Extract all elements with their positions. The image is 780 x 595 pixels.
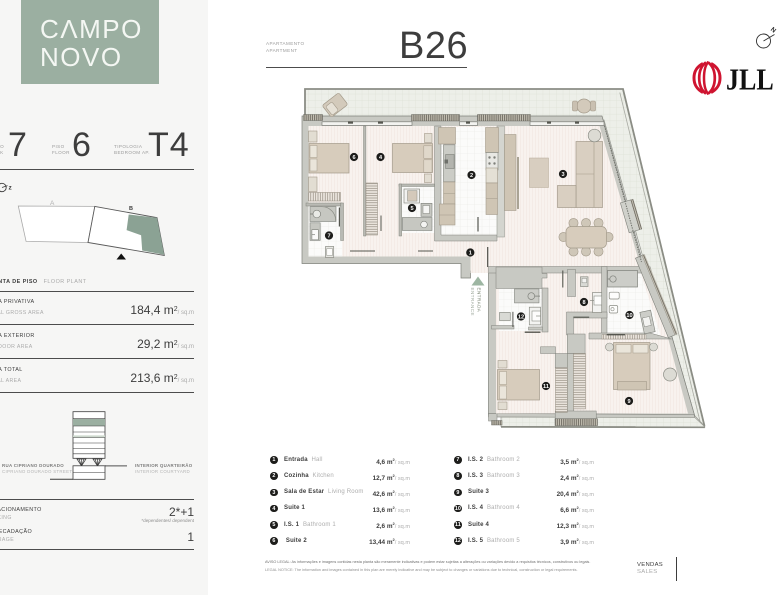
svg-text:6: 6 <box>352 155 355 161</box>
svg-text:ENTRANCE: ENTRANCE <box>470 288 475 316</box>
svg-text:11: 11 <box>543 384 549 390</box>
svg-text:5: 5 <box>410 206 413 212</box>
svg-text:12: 12 <box>518 315 524 321</box>
svg-text:9: 9 <box>627 399 630 405</box>
svg-text:10: 10 <box>626 313 632 319</box>
svg-text:3: 3 <box>561 172 564 178</box>
svg-text:ENTRADA: ENTRADA <box>476 288 481 313</box>
svg-text:7: 7 <box>327 234 330 240</box>
svg-text:8: 8 <box>582 300 585 306</box>
svg-text:2: 2 <box>470 173 473 179</box>
svg-text:1: 1 <box>469 251 472 257</box>
